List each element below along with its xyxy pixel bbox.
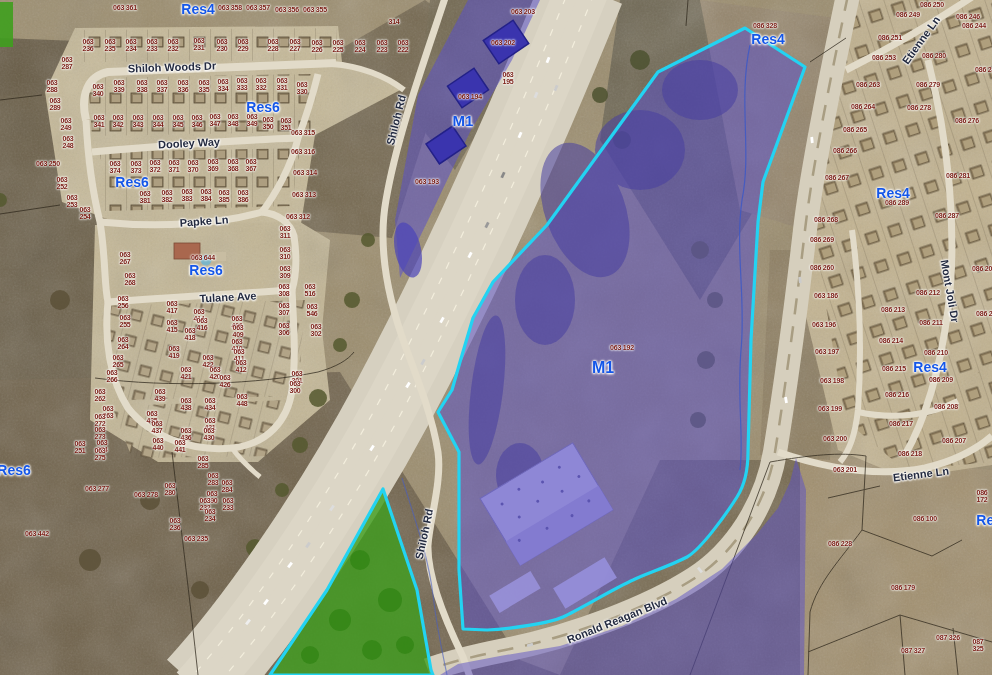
green-sliver: [0, 2, 13, 47]
map-viewport[interactable]: 063 361063 358063 357063 356063 35531406…: [0, 0, 992, 675]
aerial-basemap: [0, 0, 992, 675]
